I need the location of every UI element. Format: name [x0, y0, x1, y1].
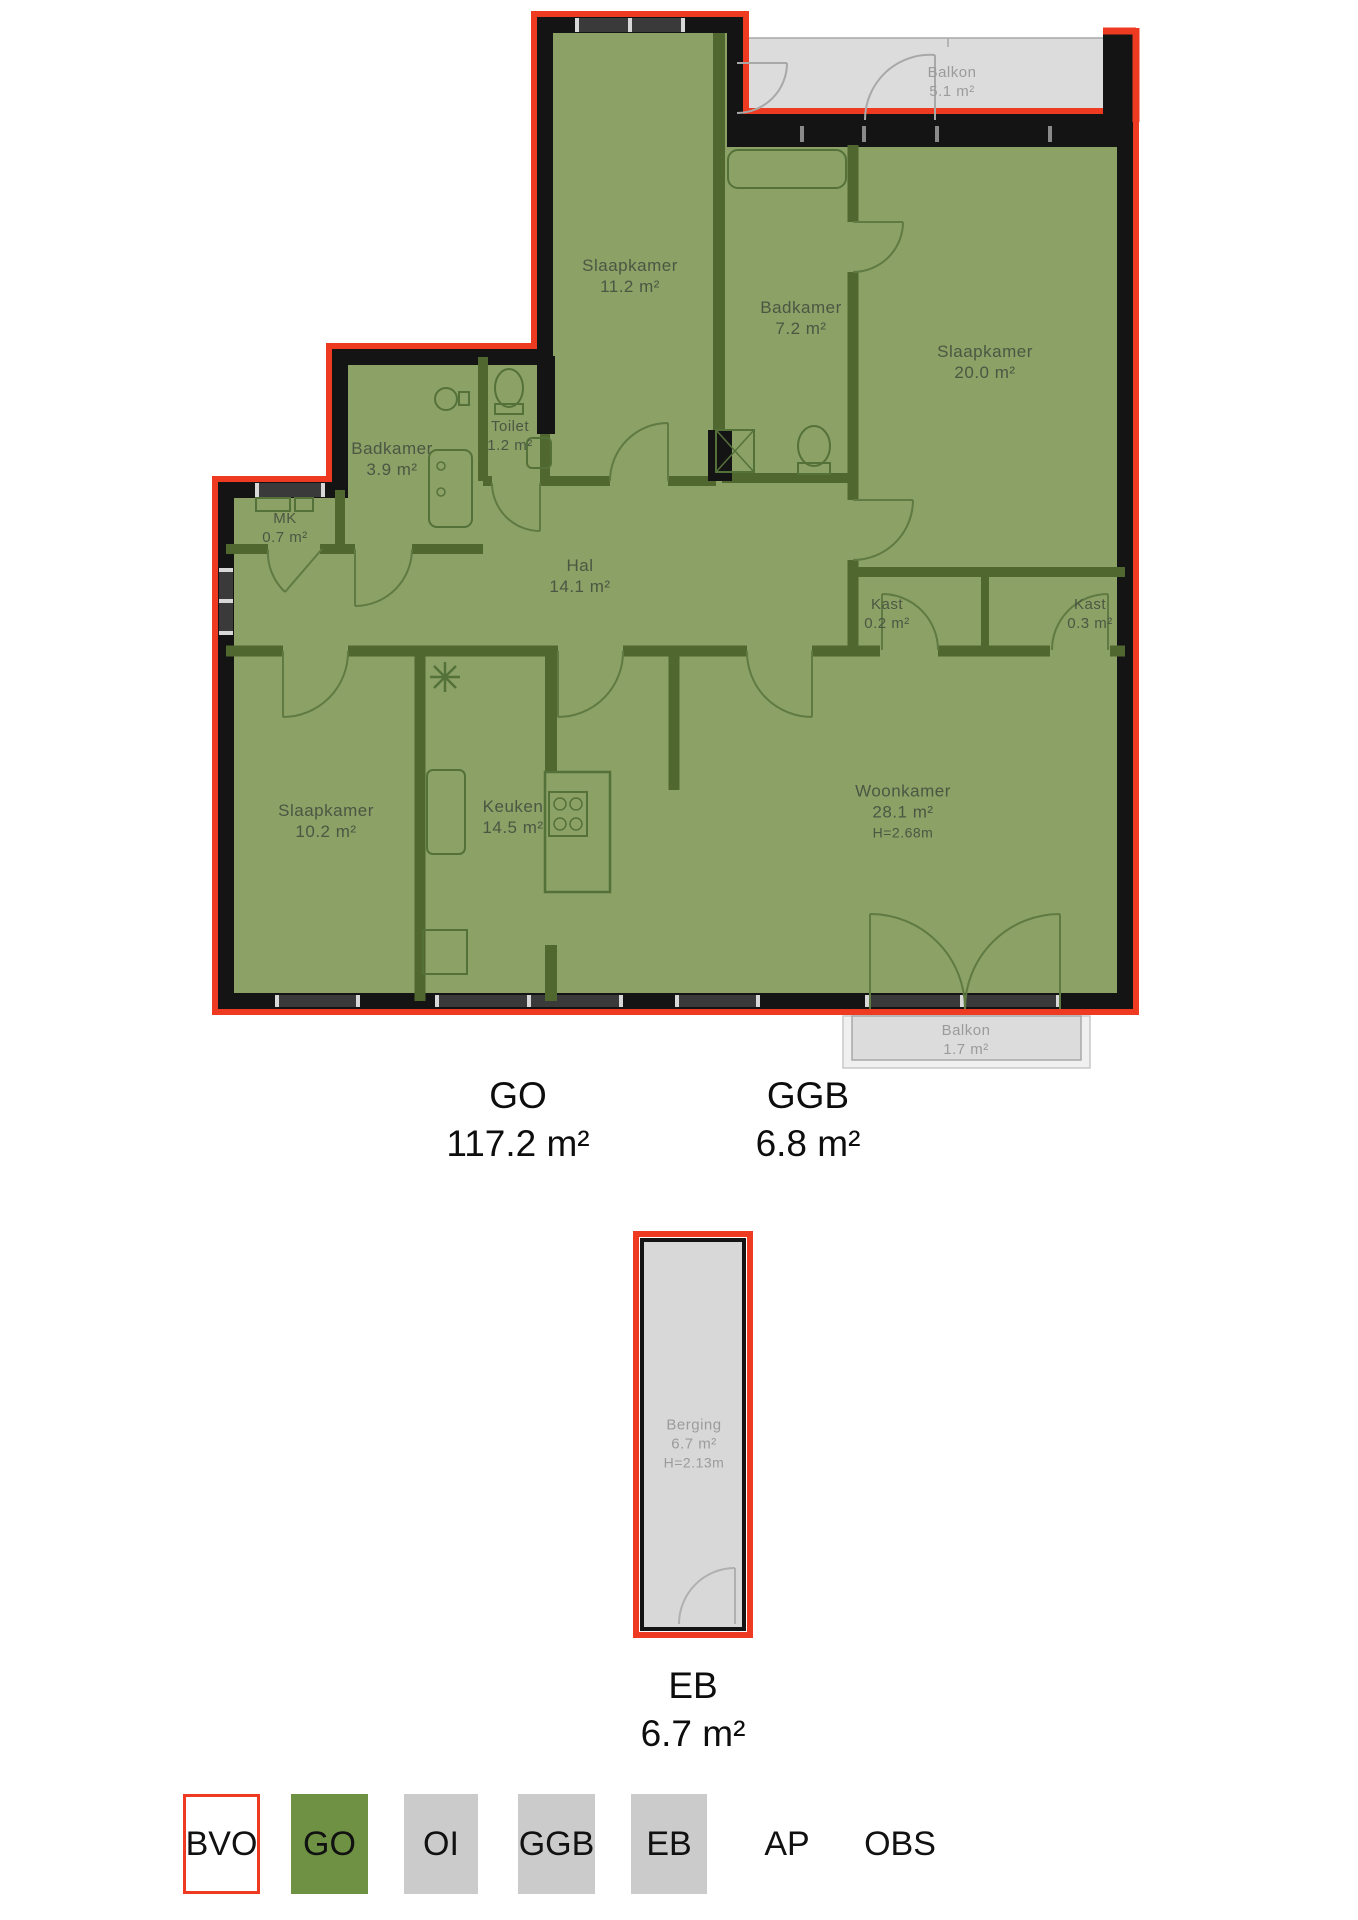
room-label-slaapkamer-1: Slaapkamer11.2 m² [582, 255, 678, 297]
legend-item-ap: AP [752, 1794, 822, 1894]
room-label-balkon-top: Balkon5.1 m² [928, 63, 977, 101]
legend-label-bvo: BVO [186, 1825, 258, 1864]
top-wall-thickening [727, 122, 1125, 147]
legend-item-ggb: GGB [518, 1794, 595, 1894]
legend-label-obs: OBS [864, 1825, 936, 1864]
legend-label-eb: EB [646, 1825, 691, 1864]
legend-item-eb: EB [631, 1794, 707, 1894]
legend-item-obs: OBS [864, 1794, 936, 1894]
go-area-fill [226, 25, 1125, 1001]
legend-label-oi: OI [423, 1825, 459, 1864]
room-label-keuken: Keuken14.5 m² [482, 796, 543, 838]
floor-plan-drawing [0, 0, 1358, 1920]
legend-item-go: GO [291, 1794, 368, 1894]
legend-label-ap: AP [764, 1825, 809, 1864]
balcony-right-pier [1103, 28, 1136, 122]
room-label-woonkamer: Woonkamer28.1 m² H=2.68m [855, 781, 951, 844]
legend-item-bvo: BVO [183, 1794, 260, 1894]
room-label-hal: Hal14.1 m² [549, 555, 610, 597]
room-label-badkamer-1: Badkamer7.2 m² [760, 297, 841, 339]
ventilation-icon [430, 662, 460, 692]
legend-item-oi: OI [404, 1794, 478, 1894]
floorplan-page: Slaapkamer11.2 m² Badkamer7.2 m² Slaapka… [0, 0, 1358, 1920]
room-label-kast-1: Kast0.2 m² [864, 595, 910, 633]
go-area-summary: GO117.2 m² [446, 1072, 589, 1168]
room-label-kast-2: Kast0.3 m² [1067, 595, 1113, 633]
room-label-toilet: Toilet1.2 m² [487, 417, 533, 455]
eb-area-summary: EB6.7 m² [641, 1662, 746, 1758]
legend: BVO GO OI GGB EB AP OBS [0, 1794, 1358, 1894]
legend-label-ggb: GGB [519, 1825, 595, 1864]
room-label-balkon-bottom: Balkon1.7 m² [942, 1021, 991, 1059]
legend-label-go: GO [303, 1825, 356, 1864]
room-label-berging: Berging6.7 m² H=2.13m [664, 1416, 725, 1473]
ggb-area-summary: GGB6.8 m² [756, 1072, 861, 1168]
room-label-badkamer-2: Badkamer3.9 m² [351, 438, 432, 480]
room-label-slaapkamer-2: Slaapkamer20.0 m² [937, 341, 1033, 383]
room-label-mk: MK0.7 m² [262, 509, 308, 547]
room-label-slaapkamer-3: Slaapkamer10.2 m² [278, 800, 374, 842]
